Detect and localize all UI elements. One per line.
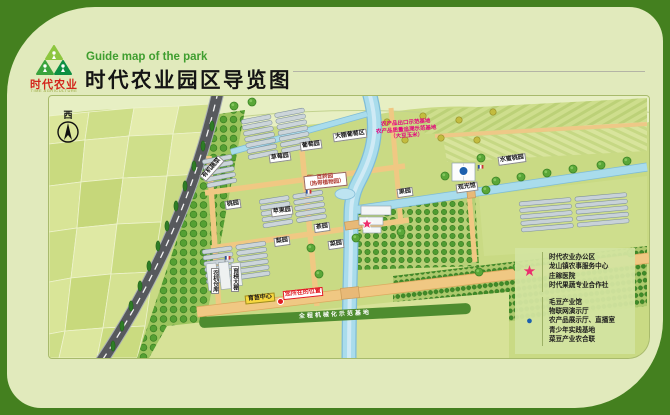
legend-circle-item: 菜豆产业农合联 [549, 335, 615, 344]
compass-west-label: 西 [55, 110, 81, 120]
page-subtitle-en: Guide map of the park [86, 51, 207, 63]
sightseeing-hall-building [452, 163, 475, 181]
legend-circle-item: 物联网演示厅 [549, 307, 615, 316]
legend-star-group: ★ 时代农业办公区 龙山镇农事服务中心 庄稼医院 时代果蔬专业合作社 [517, 252, 633, 292]
produce-base-notice: 农产品出口示范基地 农产品质量追溯示范基地 （大豆玉米） [375, 118, 437, 142]
pond [335, 189, 355, 200]
legend-circle-item: 农产品展示厅、直播室 [549, 316, 615, 325]
park-map: 西 农产品出口示范基地 农产品质量追溯示范基地 （大豆玉米） 大棚葡萄区 葡萄园… [48, 95, 650, 359]
compass-arrow-icon [56, 120, 80, 144]
logo-caption-text: TIME AGRICULTURE [26, 88, 82, 93]
legend-star-item: 时代农业办公区 [549, 253, 608, 262]
legend-circle-icon: ● [517, 297, 542, 346]
map-legend: ★ 时代农业办公区 龙山镇农事服务中心 庄稼医院 时代果蔬专业合作社 ● 毛豆产… [515, 248, 635, 354]
info-marker [459, 166, 468, 175]
page-title: 时代农业园区导览图 [85, 63, 292, 93]
legend-circle-item: 青少年实践基地 [549, 326, 615, 335]
label-farm-machinery-warehouse: 农机仓库 [211, 268, 219, 294]
label-seedling-greenhouse: 育秧大棚 [231, 266, 239, 292]
legend-star-item: 龙山镇农事服务中心 [549, 262, 608, 271]
legend-circle-item: 毛豆产业馆 [549, 298, 615, 307]
current-location-marker [277, 298, 284, 305]
legend-star-item: 庄稼医院 [549, 272, 608, 281]
legend-circle-group: ● 毛豆产业馆 物联网演示厅 农产品展示厅、直播室 青少年实践基地 菜豆产业农合… [517, 297, 633, 346]
header-divider [293, 71, 645, 72]
legend-star-icon: ★ [517, 252, 542, 292]
legend-star-item: 时代果蔬专业合作社 [549, 281, 608, 290]
guide-map-page: 时代农业 TIME AGRICULTURE Guide map of the p… [0, 0, 670, 415]
compass: 西 [55, 110, 81, 149]
park-logo-icon [34, 45, 74, 76]
